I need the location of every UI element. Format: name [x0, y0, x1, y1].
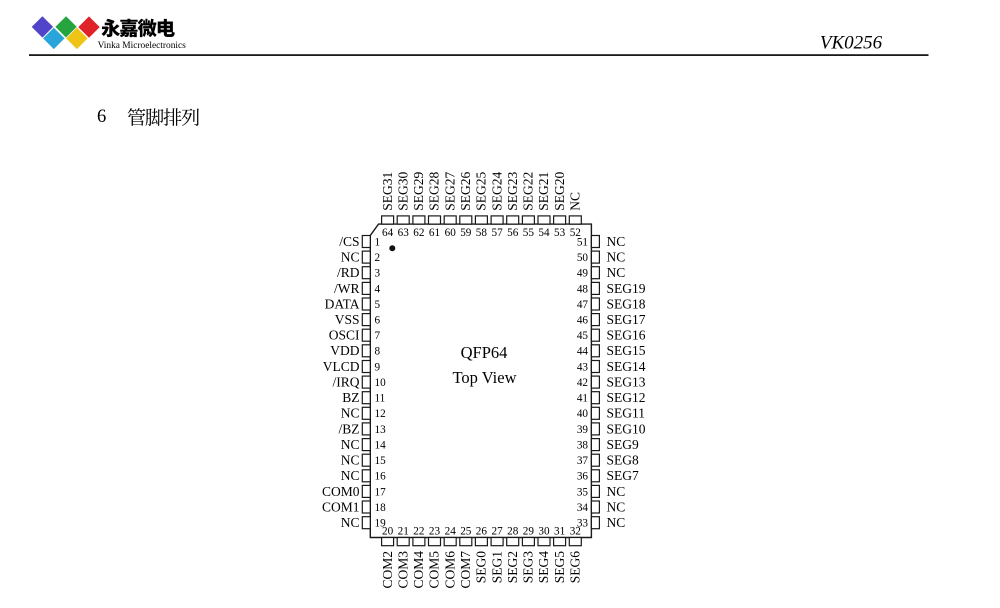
svg-text:SEG20: SEG20 [552, 172, 567, 211]
svg-text:SEG31: SEG31 [380, 172, 395, 211]
svg-text:11: 11 [375, 393, 386, 405]
svg-text:24: 24 [445, 525, 457, 537]
svg-text:59: 59 [460, 227, 472, 239]
svg-text:42: 42 [577, 377, 588, 389]
svg-text:60: 60 [445, 227, 457, 239]
svg-text:NC: NC [341, 406, 360, 421]
svg-text:NC: NC [341, 468, 360, 483]
svg-text:3: 3 [375, 268, 381, 280]
svg-text:SEG7: SEG7 [607, 468, 640, 483]
svg-text:51: 51 [577, 236, 588, 248]
svg-text:COM5: COM5 [427, 551, 442, 589]
svg-text:23: 23 [429, 525, 441, 537]
svg-text:VLCD: VLCD [323, 359, 360, 374]
svg-text:40: 40 [577, 408, 589, 420]
svg-text:NC: NC [341, 453, 360, 468]
svg-text:COM1: COM1 [322, 499, 360, 514]
svg-text:SEG4: SEG4 [536, 551, 551, 584]
svg-text:SEG6: SEG6 [568, 551, 583, 584]
svg-text:NC: NC [568, 192, 583, 211]
svg-text:SEG25: SEG25 [474, 172, 489, 211]
svg-text:6: 6 [97, 107, 106, 127]
svg-text:SEG14: SEG14 [607, 359, 646, 374]
svg-text:49: 49 [577, 268, 589, 280]
svg-text:SEG9: SEG9 [607, 437, 640, 452]
svg-text:SEG28: SEG28 [427, 172, 442, 211]
svg-text:SEG1: SEG1 [489, 551, 504, 583]
svg-text:VDD: VDD [330, 343, 359, 358]
svg-text:NC: NC [607, 250, 626, 265]
svg-text:43: 43 [577, 361, 589, 373]
svg-text:35: 35 [577, 486, 589, 498]
svg-text:Vinka Microelectronics: Vinka Microelectronics [98, 41, 187, 51]
svg-text:13: 13 [375, 424, 387, 436]
svg-text:44: 44 [577, 346, 589, 358]
svg-text:/WR: /WR [334, 281, 360, 296]
svg-text:16: 16 [375, 471, 387, 483]
svg-text:SEG29: SEG29 [411, 172, 426, 211]
svg-text:/CS: /CS [339, 234, 359, 249]
svg-text:33: 33 [577, 518, 589, 530]
svg-text:NC: NC [607, 265, 626, 280]
svg-text:18: 18 [375, 502, 387, 514]
svg-text:SEG15: SEG15 [607, 343, 646, 358]
svg-text:NC: NC [607, 499, 626, 514]
svg-text:1: 1 [375, 236, 381, 248]
svg-text:62: 62 [413, 227, 424, 239]
svg-text:SEG22: SEG22 [521, 172, 536, 211]
svg-text:45: 45 [577, 330, 589, 342]
svg-text:SEG23: SEG23 [505, 172, 520, 211]
svg-text:64: 64 [382, 227, 394, 239]
svg-text:15: 15 [375, 455, 387, 467]
svg-text:29: 29 [523, 525, 535, 537]
svg-text:38: 38 [577, 440, 589, 452]
svg-text:26: 26 [476, 525, 488, 537]
svg-text:48: 48 [577, 283, 589, 295]
svg-text:2: 2 [375, 252, 381, 264]
svg-text:56: 56 [507, 227, 519, 239]
svg-text:4: 4 [375, 283, 381, 295]
svg-text:SEG3: SEG3 [521, 551, 536, 584]
svg-text:55: 55 [523, 227, 535, 239]
svg-text:NC: NC [607, 234, 626, 249]
svg-text:NC: NC [341, 437, 360, 452]
svg-text:SEG5: SEG5 [552, 551, 567, 584]
svg-text:SEG13: SEG13 [607, 375, 646, 390]
svg-text:COM3: COM3 [395, 551, 410, 589]
svg-text:OSCI: OSCI [329, 328, 360, 343]
svg-text:BZ: BZ [342, 390, 359, 405]
svg-text:SEG18: SEG18 [607, 296, 646, 311]
svg-text:36: 36 [577, 471, 589, 483]
svg-text:QFP64: QFP64 [461, 343, 508, 362]
svg-text:61: 61 [429, 227, 440, 239]
svg-text:6: 6 [375, 315, 381, 327]
svg-text:22: 22 [413, 525, 424, 537]
svg-text:17: 17 [375, 486, 387, 498]
svg-text:COM4: COM4 [411, 551, 426, 589]
svg-text:57: 57 [492, 227, 504, 239]
svg-text:SEG19: SEG19 [607, 281, 646, 296]
svg-text:SEG10: SEG10 [607, 421, 646, 436]
svg-text:SEG11: SEG11 [607, 406, 646, 421]
svg-text:8: 8 [375, 346, 381, 358]
svg-text:/RD: /RD [337, 265, 360, 280]
svg-text:SEG0: SEG0 [474, 551, 489, 584]
svg-text:NC: NC [341, 515, 360, 530]
svg-text:SEG2: SEG2 [505, 551, 520, 583]
svg-text:7: 7 [375, 330, 381, 342]
svg-text:53: 53 [554, 227, 566, 239]
svg-text:63: 63 [398, 227, 410, 239]
svg-text:SEG8: SEG8 [607, 453, 640, 468]
svg-text:9: 9 [375, 361, 381, 373]
svg-text:25: 25 [460, 525, 472, 537]
svg-text:SEG16: SEG16 [607, 328, 646, 343]
svg-text:47: 47 [577, 299, 589, 311]
svg-text:34: 34 [577, 502, 589, 514]
svg-text:54: 54 [538, 227, 550, 239]
svg-text:SEG24: SEG24 [489, 172, 504, 211]
svg-text:31: 31 [554, 525, 565, 537]
svg-text:58: 58 [476, 227, 488, 239]
svg-text:50: 50 [577, 252, 589, 264]
svg-text:COM0: COM0 [322, 484, 360, 499]
svg-text:10: 10 [375, 377, 387, 389]
svg-text:Top View: Top View [452, 368, 516, 387]
svg-text:5: 5 [375, 299, 381, 311]
svg-text:37: 37 [577, 455, 589, 467]
svg-text:VK0256: VK0256 [820, 33, 883, 54]
svg-text:NC: NC [341, 250, 360, 265]
svg-text:41: 41 [577, 393, 588, 405]
svg-text:SEG30: SEG30 [395, 172, 410, 211]
svg-text:SEG21: SEG21 [536, 172, 551, 211]
svg-text:NC: NC [607, 515, 626, 530]
svg-text:/IRQ: /IRQ [333, 375, 360, 390]
svg-text:SEG27: SEG27 [442, 172, 457, 211]
svg-text:NC: NC [607, 484, 626, 499]
svg-text:DATA: DATA [325, 296, 360, 311]
svg-text:COM2: COM2 [380, 551, 395, 589]
svg-text:30: 30 [538, 525, 550, 537]
svg-text:39: 39 [577, 424, 589, 436]
svg-text:46: 46 [577, 315, 589, 327]
svg-text:COM6: COM6 [442, 551, 457, 589]
svg-text:SEG12: SEG12 [607, 390, 646, 405]
svg-text:28: 28 [507, 525, 519, 537]
svg-text:14: 14 [375, 440, 387, 452]
svg-text:COM7: COM7 [458, 551, 473, 589]
svg-text:19: 19 [375, 518, 387, 530]
svg-text:21: 21 [398, 525, 409, 537]
svg-text:SEG26: SEG26 [458, 172, 473, 211]
svg-text:12: 12 [375, 408, 386, 420]
svg-text:SEG17: SEG17 [607, 312, 646, 327]
svg-text:VSS: VSS [335, 312, 360, 327]
svg-text:/BZ: /BZ [338, 421, 359, 436]
svg-text:27: 27 [492, 525, 504, 537]
